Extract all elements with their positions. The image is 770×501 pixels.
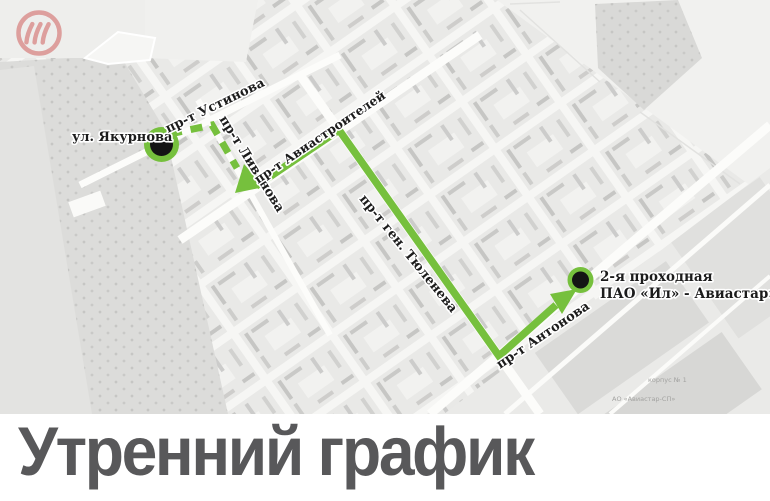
destination-label-line1: 2-я проходная — [600, 269, 713, 285]
factory-label-aviastar-sp: АО «Авиастар-СП» — [612, 395, 675, 403]
il-logo — [12, 6, 66, 60]
factory-label-korpus: корпус № 1 — [648, 376, 687, 384]
title-bar: Утренний график — [0, 414, 770, 501]
map-canvas: корпус № 1 АО «Авиастар-СП» — [0, 0, 770, 414]
city-map: корпус № 1 АО «Авиастар-СП» — [0, 0, 770, 414]
page-title: Утренний график — [18, 416, 717, 488]
il-logo-icon — [12, 6, 66, 60]
destination-label-line2: ПАО «Ил» - Авиастар» — [600, 286, 770, 302]
infographic-card: корпус № 1 АО «Авиастар-СП» — [0, 0, 770, 501]
end-stop-marker — [568, 267, 594, 293]
street-label-yakurnova: ул. Якурнова — [72, 130, 173, 145]
